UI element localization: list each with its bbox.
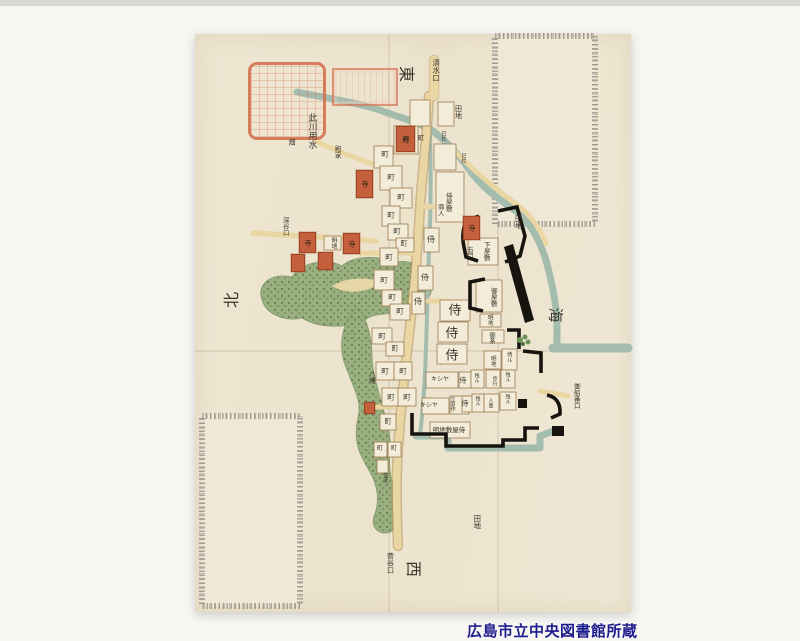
map-label: キシヤ: [431, 377, 449, 383]
field-panel-bottom-left: [202, 416, 300, 606]
map-label: 西: [405, 561, 421, 577]
map-label: 清水口: [432, 59, 440, 82]
map-label: 残ル: [505, 372, 510, 382]
map-label: 畑: [289, 140, 296, 147]
map-label: 町: [387, 173, 395, 181]
temple-label: 寺: [348, 240, 355, 247]
map-label: 町: [401, 241, 408, 248]
map-label: 巳社: [461, 153, 466, 163]
map-label: 町: [391, 446, 397, 452]
map-label: 八幡: [368, 371, 375, 384]
map-label: 侍: [462, 401, 469, 408]
map-label: 明地敷屋侍: [433, 427, 466, 434]
map-label: 町: [418, 135, 425, 142]
map-label: 海: [548, 307, 563, 322]
map-label: 商人: [437, 204, 444, 217]
temple-building: 寺: [299, 232, 316, 253]
field-panel-top-right: [495, 36, 595, 224]
map-label: 侍: [414, 298, 422, 306]
temple-label: 寺: [361, 181, 368, 188]
temple-label: 寺: [304, 239, 311, 246]
map-label: 町: [396, 307, 404, 315]
map-label: 町: [392, 346, 399, 353]
map-label: 町: [381, 367, 389, 375]
map-label: 町: [387, 393, 395, 401]
map-label: 並木: [381, 473, 387, 484]
map-label: 此川用水: [307, 113, 316, 149]
map-label: 巳社: [441, 131, 446, 141]
temple-building: [291, 254, 305, 272]
map-label: 町: [378, 332, 386, 340]
map-label: 田地: [515, 215, 522, 229]
map-label: 深谷口: [282, 216, 289, 236]
map-label: 町: [397, 193, 405, 201]
map-drawing: [0, 0, 800, 640]
map-label: キシヤ: [420, 403, 438, 409]
map-label: 殿家: [334, 146, 341, 159]
map-label: 侍屋敷: [445, 192, 452, 212]
map-label: 町: [402, 136, 410, 144]
map-label: 侍: [448, 305, 461, 318]
map-label: 歩行: [492, 376, 497, 386]
map-label: 御船番口: [573, 383, 580, 409]
map-label: 下屋敷: [483, 241, 490, 261]
map-label: 明地: [330, 237, 336, 249]
map-label: 菅谷口: [387, 553, 394, 574]
map-label: 町: [385, 253, 393, 261]
temple-building: 寺: [343, 233, 360, 254]
map-label: 田地: [455, 105, 462, 119]
map-label: 侍: [445, 328, 458, 341]
map-label: 町: [387, 211, 395, 219]
map-label: 田地: [473, 515, 481, 530]
map-label: 町: [399, 367, 407, 375]
map-label: 侍: [427, 236, 435, 244]
town-block: [434, 144, 456, 170]
map-label: 明地: [489, 356, 495, 367]
town-block: [410, 100, 430, 126]
map-label: 侍: [445, 350, 458, 363]
cartouche-stamp-icon: [332, 68, 398, 106]
map-label: 町: [377, 446, 383, 452]
map-label: 残ル: [505, 394, 510, 404]
map-label: 町: [393, 227, 401, 235]
map-label: 町: [403, 393, 411, 401]
temple-building: [364, 402, 375, 414]
map-label: 町: [388, 293, 396, 301]
temple-building: 寺: [463, 216, 480, 240]
map-label: 残ル: [474, 373, 479, 383]
map-label: 東: [398, 66, 414, 82]
map-label: 北: [224, 292, 240, 308]
town-block: [438, 102, 454, 126]
map-label: 侍: [460, 378, 467, 385]
collection-caption: 広島市立中央図書館所蔵: [467, 620, 797, 641]
map-label: 明地: [486, 315, 492, 326]
map-label: 侍ル: [505, 352, 511, 363]
map-label: 町: [385, 419, 392, 426]
temple-building: 寺: [356, 170, 373, 198]
map-label: 御茶: [488, 332, 494, 344]
map-label: 町: [381, 150, 389, 158]
town-block: [377, 460, 388, 473]
map-label: 右門: [466, 246, 472, 258]
map-label: 御屋敷: [490, 287, 497, 307]
map-label: 人置: [488, 398, 493, 408]
map-label: 侍: [421, 274, 429, 282]
map-label: 立退作: [450, 397, 455, 412]
page: { "caption": { "text": "広島市立中央図書館所蔵" }, …: [0, 0, 800, 640]
map-label: 町: [380, 276, 388, 284]
temple-label: 寺: [468, 225, 475, 232]
map-label: 残ル: [475, 396, 480, 406]
temple-building: [318, 252, 333, 270]
